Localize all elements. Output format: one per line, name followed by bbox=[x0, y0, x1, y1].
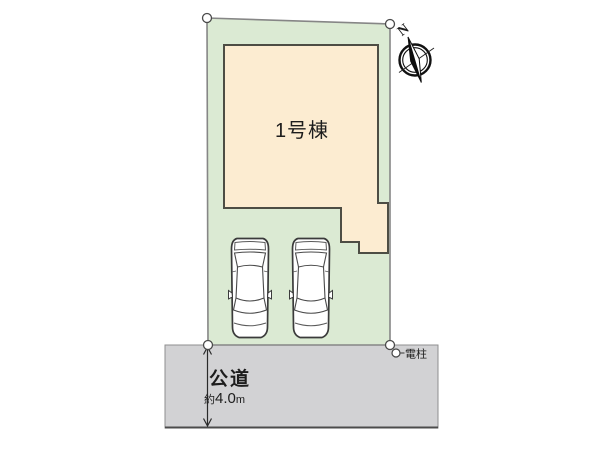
boundary-marker-bottom-left bbox=[204, 341, 213, 350]
site-plan-drawing: 1号棟 公道 約4.0m 電柱 bbox=[0, 0, 600, 450]
north-label: N bbox=[395, 22, 412, 40]
road-name-label: 公道 bbox=[209, 367, 251, 390]
utility-pole-label: 電柱 bbox=[405, 347, 427, 361]
boundary-marker-top-left bbox=[203, 14, 212, 23]
car-1 bbox=[229, 239, 272, 338]
compass-icon: N bbox=[395, 22, 434, 83]
site-plan-page: 1号棟 公道 約4.0m 電柱 bbox=[0, 0, 600, 450]
boundary-marker-bottom-right bbox=[386, 341, 395, 350]
car-2 bbox=[290, 239, 333, 338]
building-label: 1号棟 bbox=[275, 119, 329, 142]
boundary-marker-top-right bbox=[386, 20, 395, 29]
